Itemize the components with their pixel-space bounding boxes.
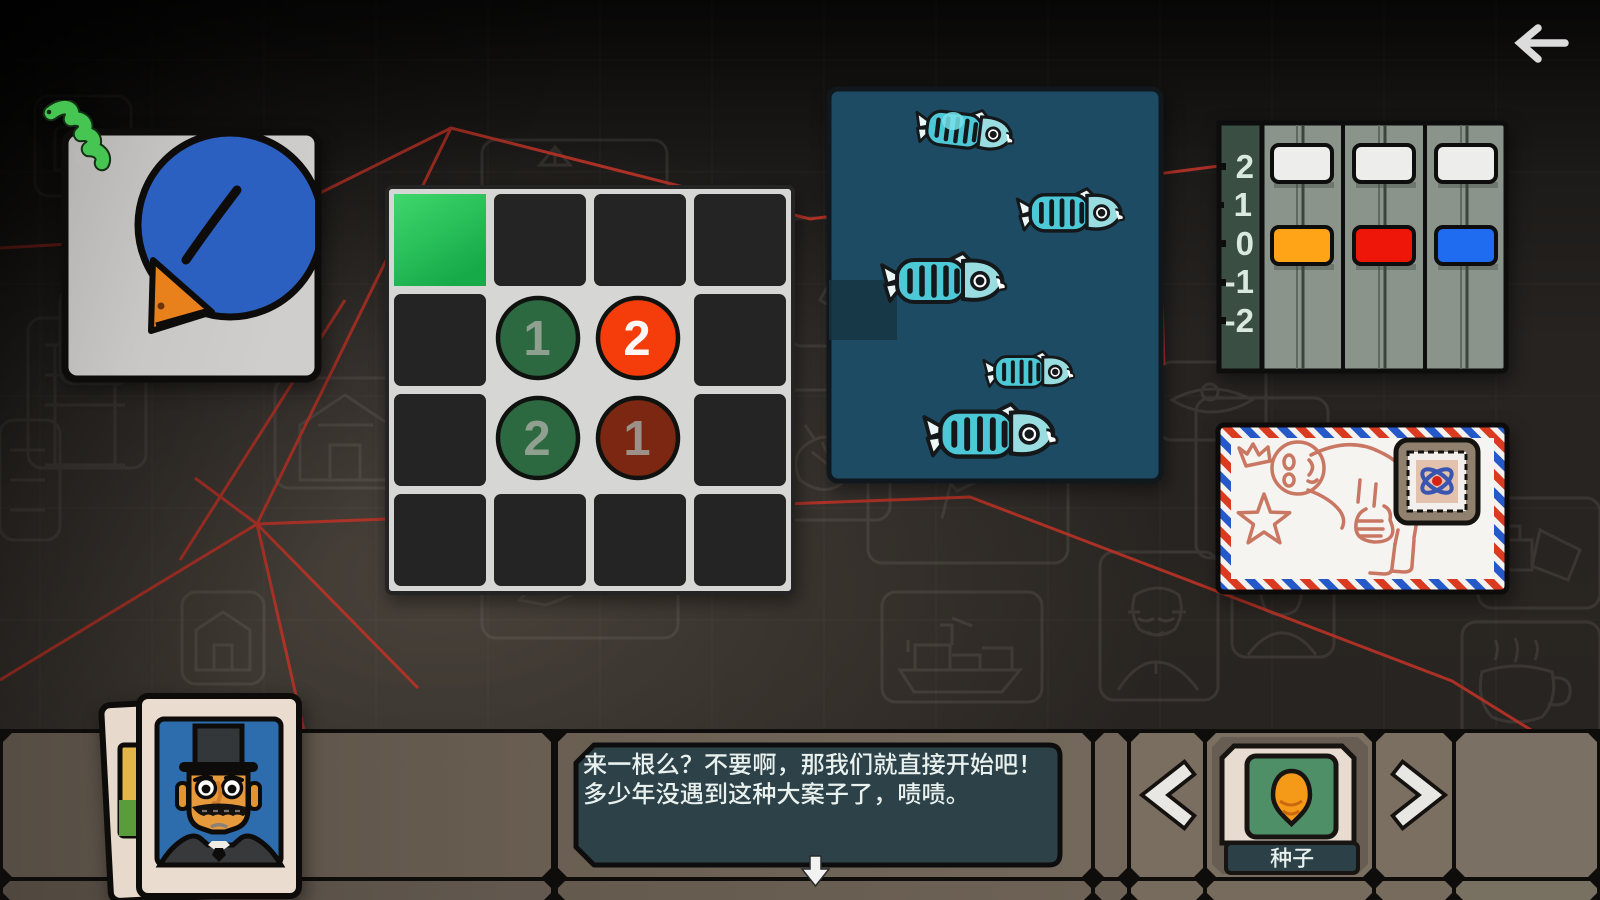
svg-text:2: 2 (623, 312, 650, 366)
svg-text:1: 1 (1234, 186, 1252, 223)
svg-text:0: 0 (1236, 225, 1254, 262)
svg-text:2: 2 (523, 412, 550, 466)
svg-text:-2: -2 (1225, 302, 1254, 339)
svg-text:2: 2 (1236, 148, 1254, 185)
svg-text:1: 1 (623, 412, 650, 466)
svg-text:1: 1 (523, 312, 550, 366)
svg-text:-1: -1 (1225, 263, 1254, 300)
